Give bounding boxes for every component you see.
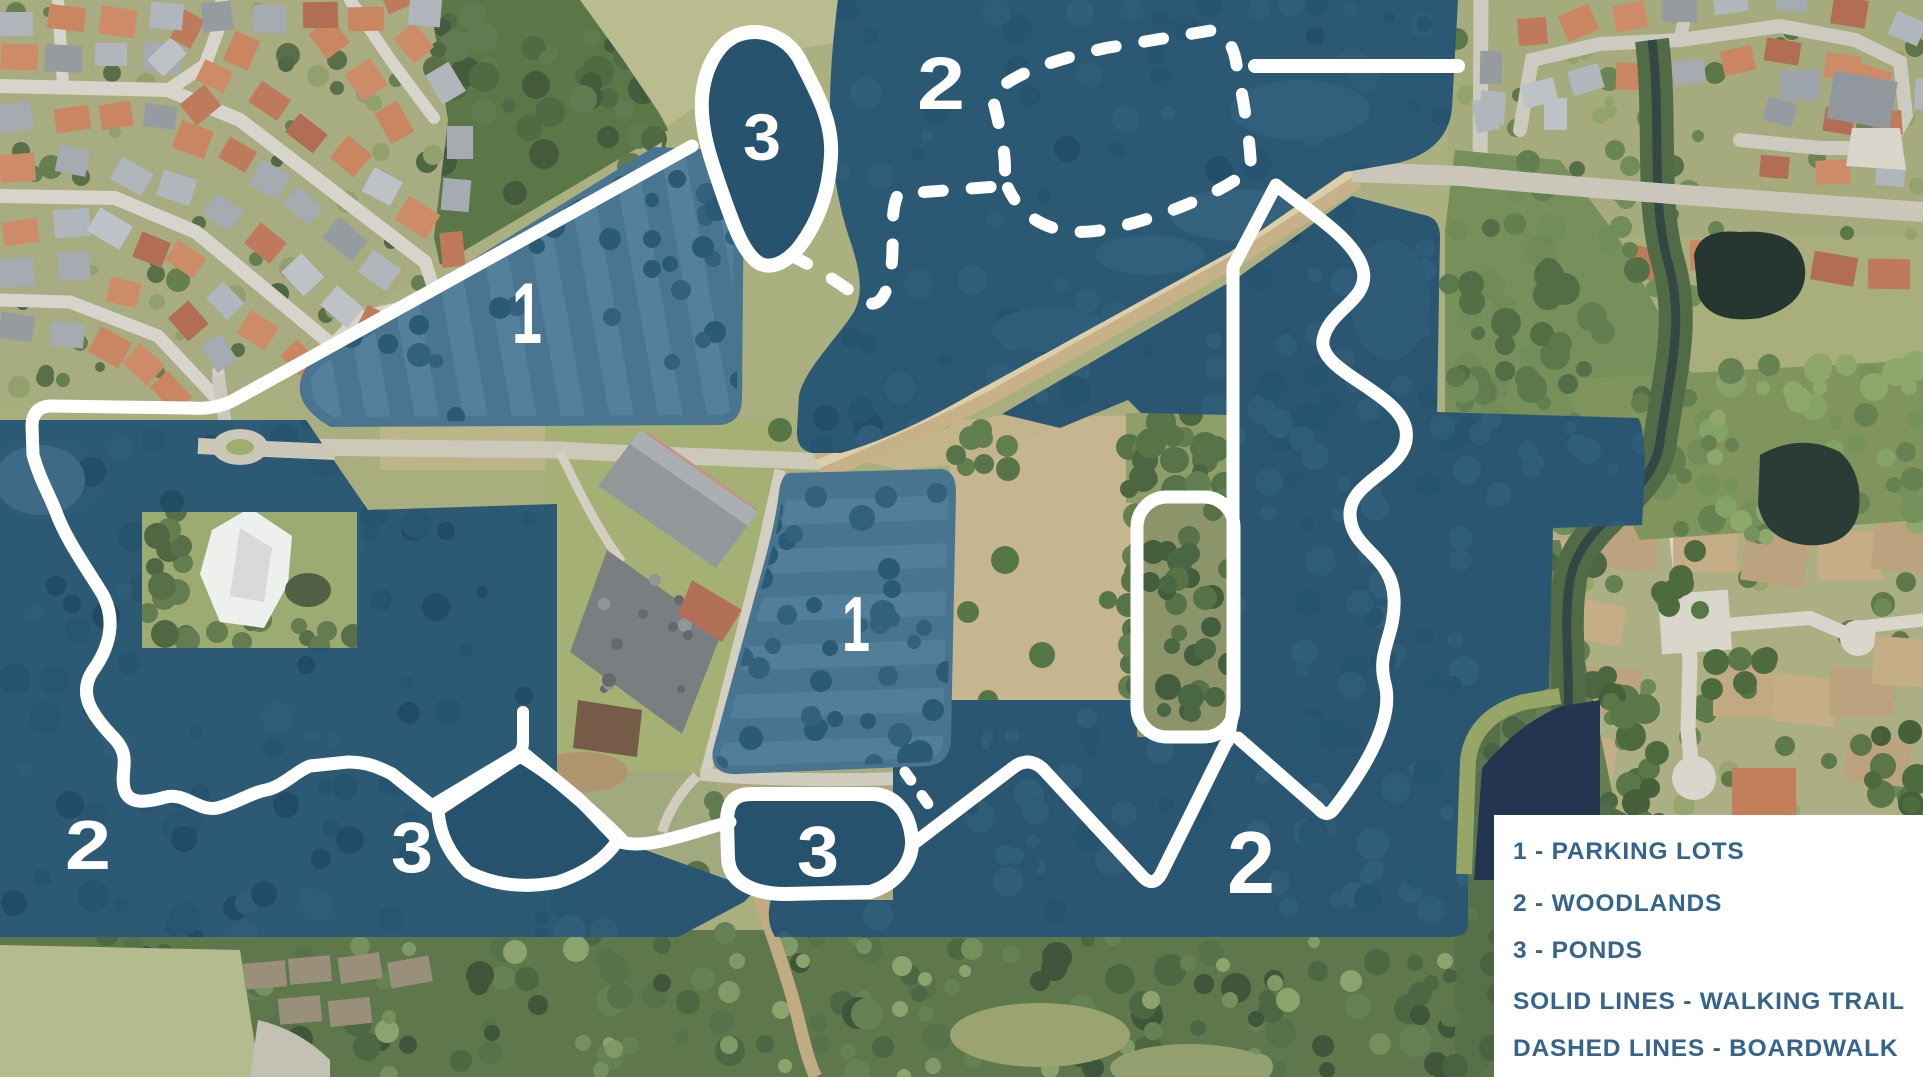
svg-text:2: 2 — [917, 42, 965, 125]
svg-text:2: 2 — [1227, 813, 1275, 912]
svg-text:3: 3 — [797, 813, 839, 892]
svg-text:DASHED LINES - BOARDWALK: DASHED LINES - BOARDWALK — [1513, 1035, 1898, 1062]
svg-text:2: 2 — [65, 806, 111, 884]
svg-text:3: 3 — [743, 100, 781, 174]
svg-text:3: 3 — [391, 809, 433, 888]
svg-text:SOLID LINES - WALKING TRAIL: SOLID LINES - WALKING TRAIL — [1513, 988, 1905, 1015]
svg-text:1 - PARKING LOTS: 1 - PARKING LOTS — [1513, 838, 1745, 865]
svg-text:1: 1 — [842, 580, 870, 668]
svg-text:3 - PONDS: 3 - PONDS — [1513, 937, 1643, 964]
svg-text:2 - WOODLANDS: 2 - WOODLANDS — [1513, 890, 1722, 917]
svg-text:1: 1 — [512, 266, 542, 362]
